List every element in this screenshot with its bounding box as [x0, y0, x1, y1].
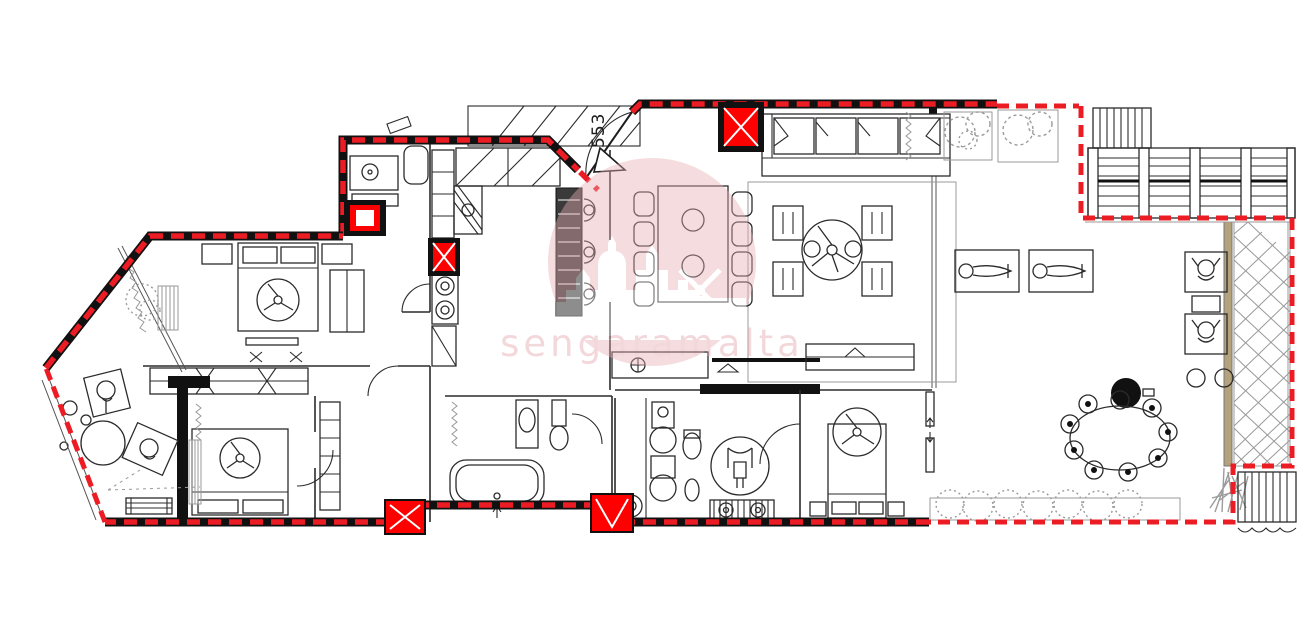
mat — [158, 286, 178, 330]
bathroom-2 — [620, 402, 774, 520]
bed — [192, 429, 288, 515]
terrace — [930, 108, 1296, 532]
unit-number: 553 — [589, 113, 609, 148]
sun-loungers — [955, 250, 1233, 387]
toilet — [404, 146, 428, 184]
slat-screen — [1093, 108, 1151, 148]
cooktop — [432, 272, 458, 324]
curtain — [452, 402, 457, 446]
label-553: 553 — [589, 113, 609, 148]
terrace-slider — [926, 392, 934, 472]
bottom-planters — [930, 468, 1248, 521]
terrace-planter — [998, 110, 1058, 162]
sink — [650, 475, 676, 501]
bed — [238, 243, 318, 331]
toilet — [683, 433, 701, 459]
floor-plan-page: 553 sengaramalta — [0, 0, 1304, 643]
accessible-shower — [710, 437, 774, 520]
toilet — [552, 400, 566, 426]
balcony-chair — [84, 369, 131, 417]
balcony — [42, 369, 200, 520]
sliding-door-pocket — [700, 384, 820, 394]
floor-plan-drawing: 553 sengaramalta — [0, 0, 1304, 643]
bench — [126, 498, 172, 514]
master-bedroom — [189, 404, 288, 515]
balcony-table — [81, 421, 125, 465]
watermark: sengaramalta — [500, 158, 804, 366]
bathroom-1 — [320, 400, 568, 518]
deck-herringbone — [1224, 222, 1290, 466]
ceiling-fan — [802, 220, 862, 280]
plant — [126, 284, 158, 316]
laundry-room — [350, 146, 428, 206]
balcony-chair — [122, 423, 178, 476]
bed — [828, 424, 886, 518]
bedroom-2 — [806, 344, 914, 518]
bedroom-1 — [126, 243, 364, 362]
indoor-planter — [944, 112, 992, 160]
sofa — [762, 114, 950, 176]
sink — [650, 427, 676, 453]
watermark-text: sengaramalta — [500, 322, 804, 365]
washing-machine — [350, 156, 398, 190]
bidet — [685, 479, 699, 501]
pergola — [1088, 148, 1295, 218]
